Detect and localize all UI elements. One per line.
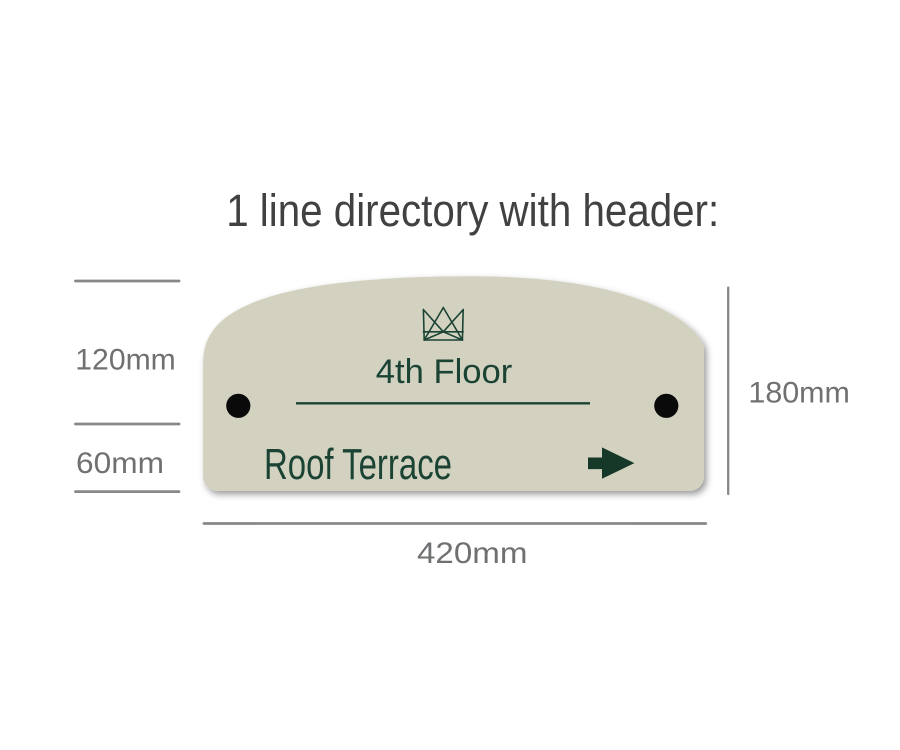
svg-text:Roof Terrace: Roof Terrace	[264, 441, 452, 489]
svg-text:420mm: 420mm	[417, 537, 528, 570]
svg-text:180mm: 180mm	[748, 377, 850, 410]
svg-text:60mm: 60mm	[76, 447, 164, 480]
svg-text:4th Floor: 4th Floor	[376, 353, 512, 391]
svg-text:120mm: 120mm	[75, 344, 176, 377]
svg-text:1 line directory with header:: 1 line directory with header:	[226, 185, 719, 236]
